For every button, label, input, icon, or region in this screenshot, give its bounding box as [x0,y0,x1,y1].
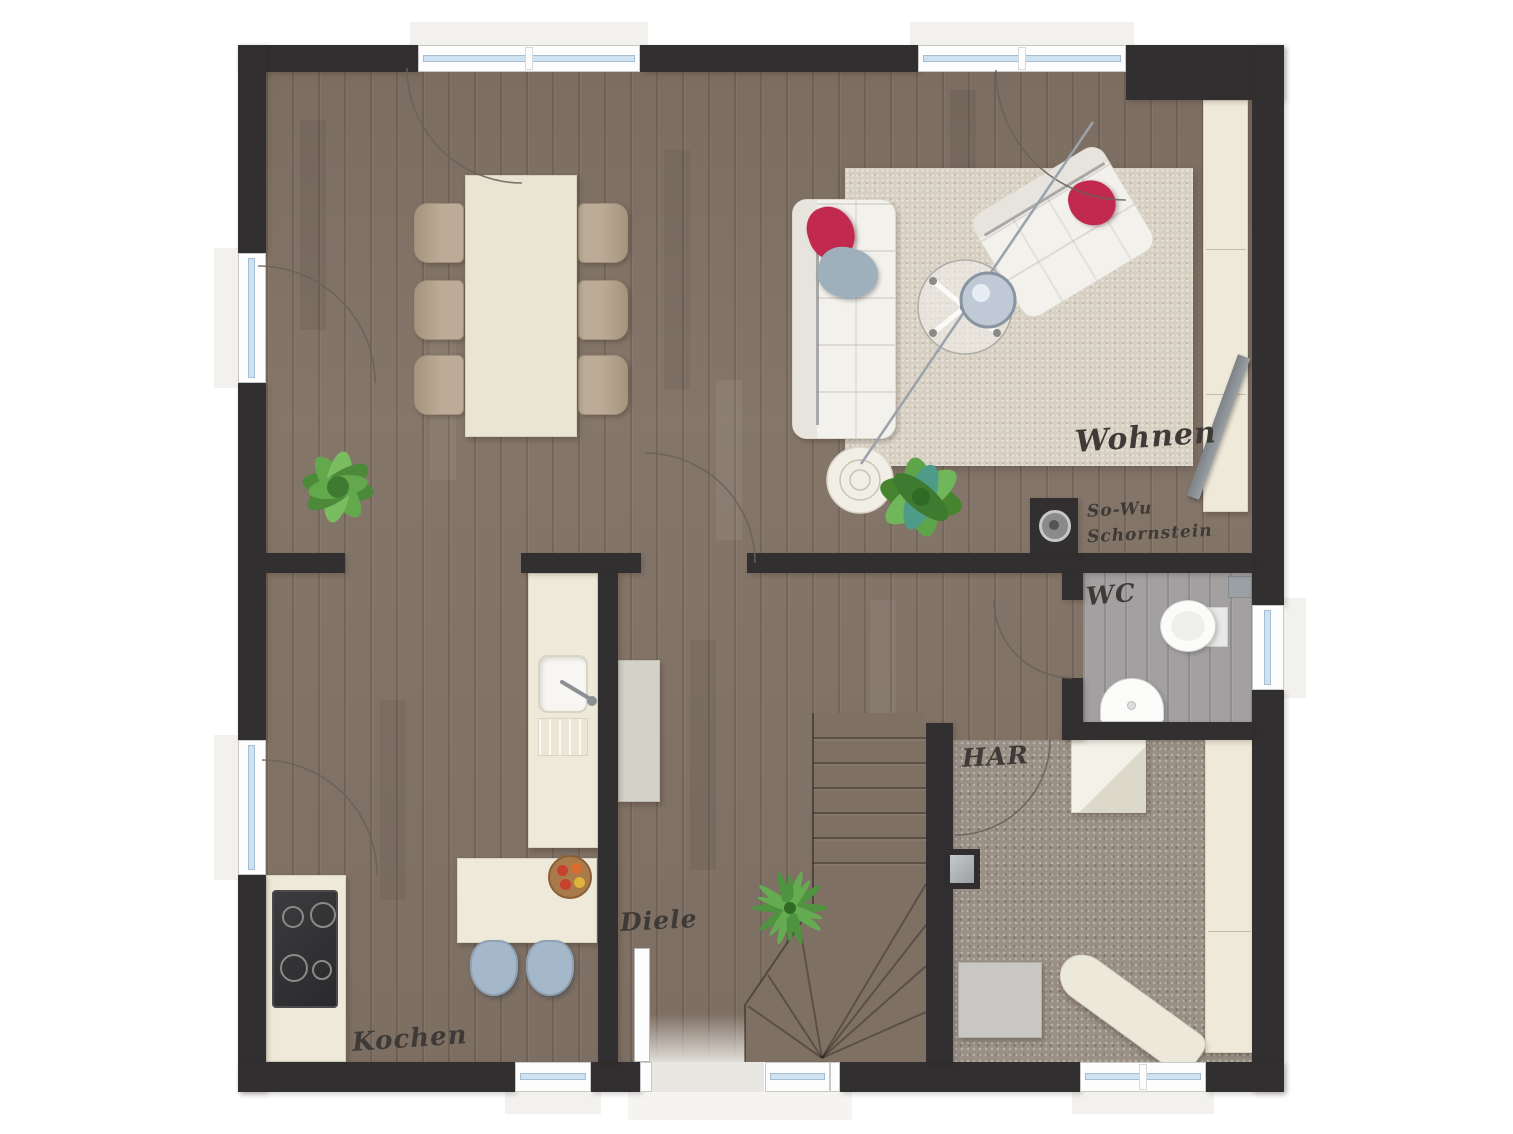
exterior-shade [214,248,238,388]
dining-chair [578,280,628,340]
bar-stool [470,940,518,996]
wall-stair-har [926,723,953,1062]
floor-plank-shade [664,150,690,390]
lowboard-divider [1206,249,1246,250]
dining-table [465,175,577,437]
bar-stool [526,940,574,996]
wardrobe-divider [1208,931,1251,932]
chimney-label-line1: So-Wu [1087,498,1153,521]
wall-bottom-center [840,1062,1080,1092]
wall-bottom-left [238,1062,515,1092]
entrance-mat [650,1014,782,1062]
wc-shelf [1228,576,1252,598]
fruit-bowl [548,855,592,899]
entrance-door-frame [830,1062,840,1092]
window-divider [1018,47,1026,70]
floor-plank-shade [300,120,326,330]
window-glass [1264,610,1271,685]
burner [310,902,336,928]
window-glass [770,1073,825,1080]
wall-left-middle [238,383,266,740]
wall-kitchen-top [521,553,641,573]
har-wardrobe [1205,737,1253,1053]
floor-plank-shade [870,600,896,720]
window-har-bottom [1080,1062,1206,1092]
wall-left-lower [238,875,266,1092]
wall-bottom-right [1206,1062,1284,1092]
entrance-threshold [652,1062,764,1092]
entrance-door-frame [640,1062,652,1092]
meter-box [944,849,980,889]
floor-plank-shade [690,640,716,870]
floor-plan-canvas: Wohnen So-Wu Schornstein WC HAR Diele Ko… [0,0,1513,1134]
wall-left-upper [238,45,266,253]
sink-drain [1127,701,1136,710]
entrance-sidelight [765,1062,830,1092]
window-divider [1139,1064,1147,1090]
floor-plank-shade [716,380,742,540]
exterior-shade [214,735,238,880]
entrance-door-leaf [634,948,650,1062]
room-label-diele: Diele [619,904,698,937]
wall-right-lower [1252,690,1284,1092]
exterior-shade [910,22,1134,45]
burner [312,960,332,980]
dining-chair [414,203,464,263]
chimney-block [1030,498,1078,553]
dining-chair [578,203,628,263]
wall-right-upper [1252,45,1284,605]
dining-chair [414,355,464,415]
wall-living-hall [747,553,1252,573]
dining-chair [414,280,464,340]
chimney-flue-ring [1039,510,1071,542]
exterior-shade [1072,1092,1214,1114]
sink-drainboard [538,718,588,756]
window-dining-top [418,45,640,72]
toilet-seat [1171,611,1205,641]
wall-bottom-entry-left [591,1062,640,1092]
laundry-basket [958,962,1042,1038]
room-label-har: HAR [961,740,1029,772]
wall-wc-har [1062,722,1252,740]
hallway-sideboard [618,660,660,802]
fruit [571,863,582,874]
exterior-shade [505,1092,601,1114]
window-divider [525,47,533,70]
chimney-flue-core [1049,520,1059,530]
window-glass [248,745,255,870]
exterior-shade [628,1092,852,1120]
toilet-bowl [1160,600,1216,652]
exterior-shade [410,22,648,45]
window-wc-right [1252,605,1284,690]
dining-chair [578,355,628,415]
wall-top-center [640,45,918,72]
wall-kitchen-hall [598,573,618,1062]
window-kitchen-bottom [515,1062,591,1092]
window-living-top [918,45,1126,72]
wall-kitchen-left-stub [266,553,345,573]
cooktop [272,890,338,1008]
window-glass [248,258,255,378]
floor-plank-shade [380,700,406,900]
fruit [574,877,585,888]
exterior-shade [1284,598,1306,698]
wall-wc-left-upper [1062,573,1083,600]
fruit [557,865,568,876]
room-label-wc: WC [1085,578,1137,611]
washing-machine [1071,739,1146,813]
burner [282,906,304,928]
terrace-door-kitchen [238,740,266,875]
window-glass [520,1073,586,1080]
kitchen-sink [538,655,588,713]
terrace-door-dining [238,253,266,383]
fruit [560,879,571,890]
burner [280,954,308,982]
